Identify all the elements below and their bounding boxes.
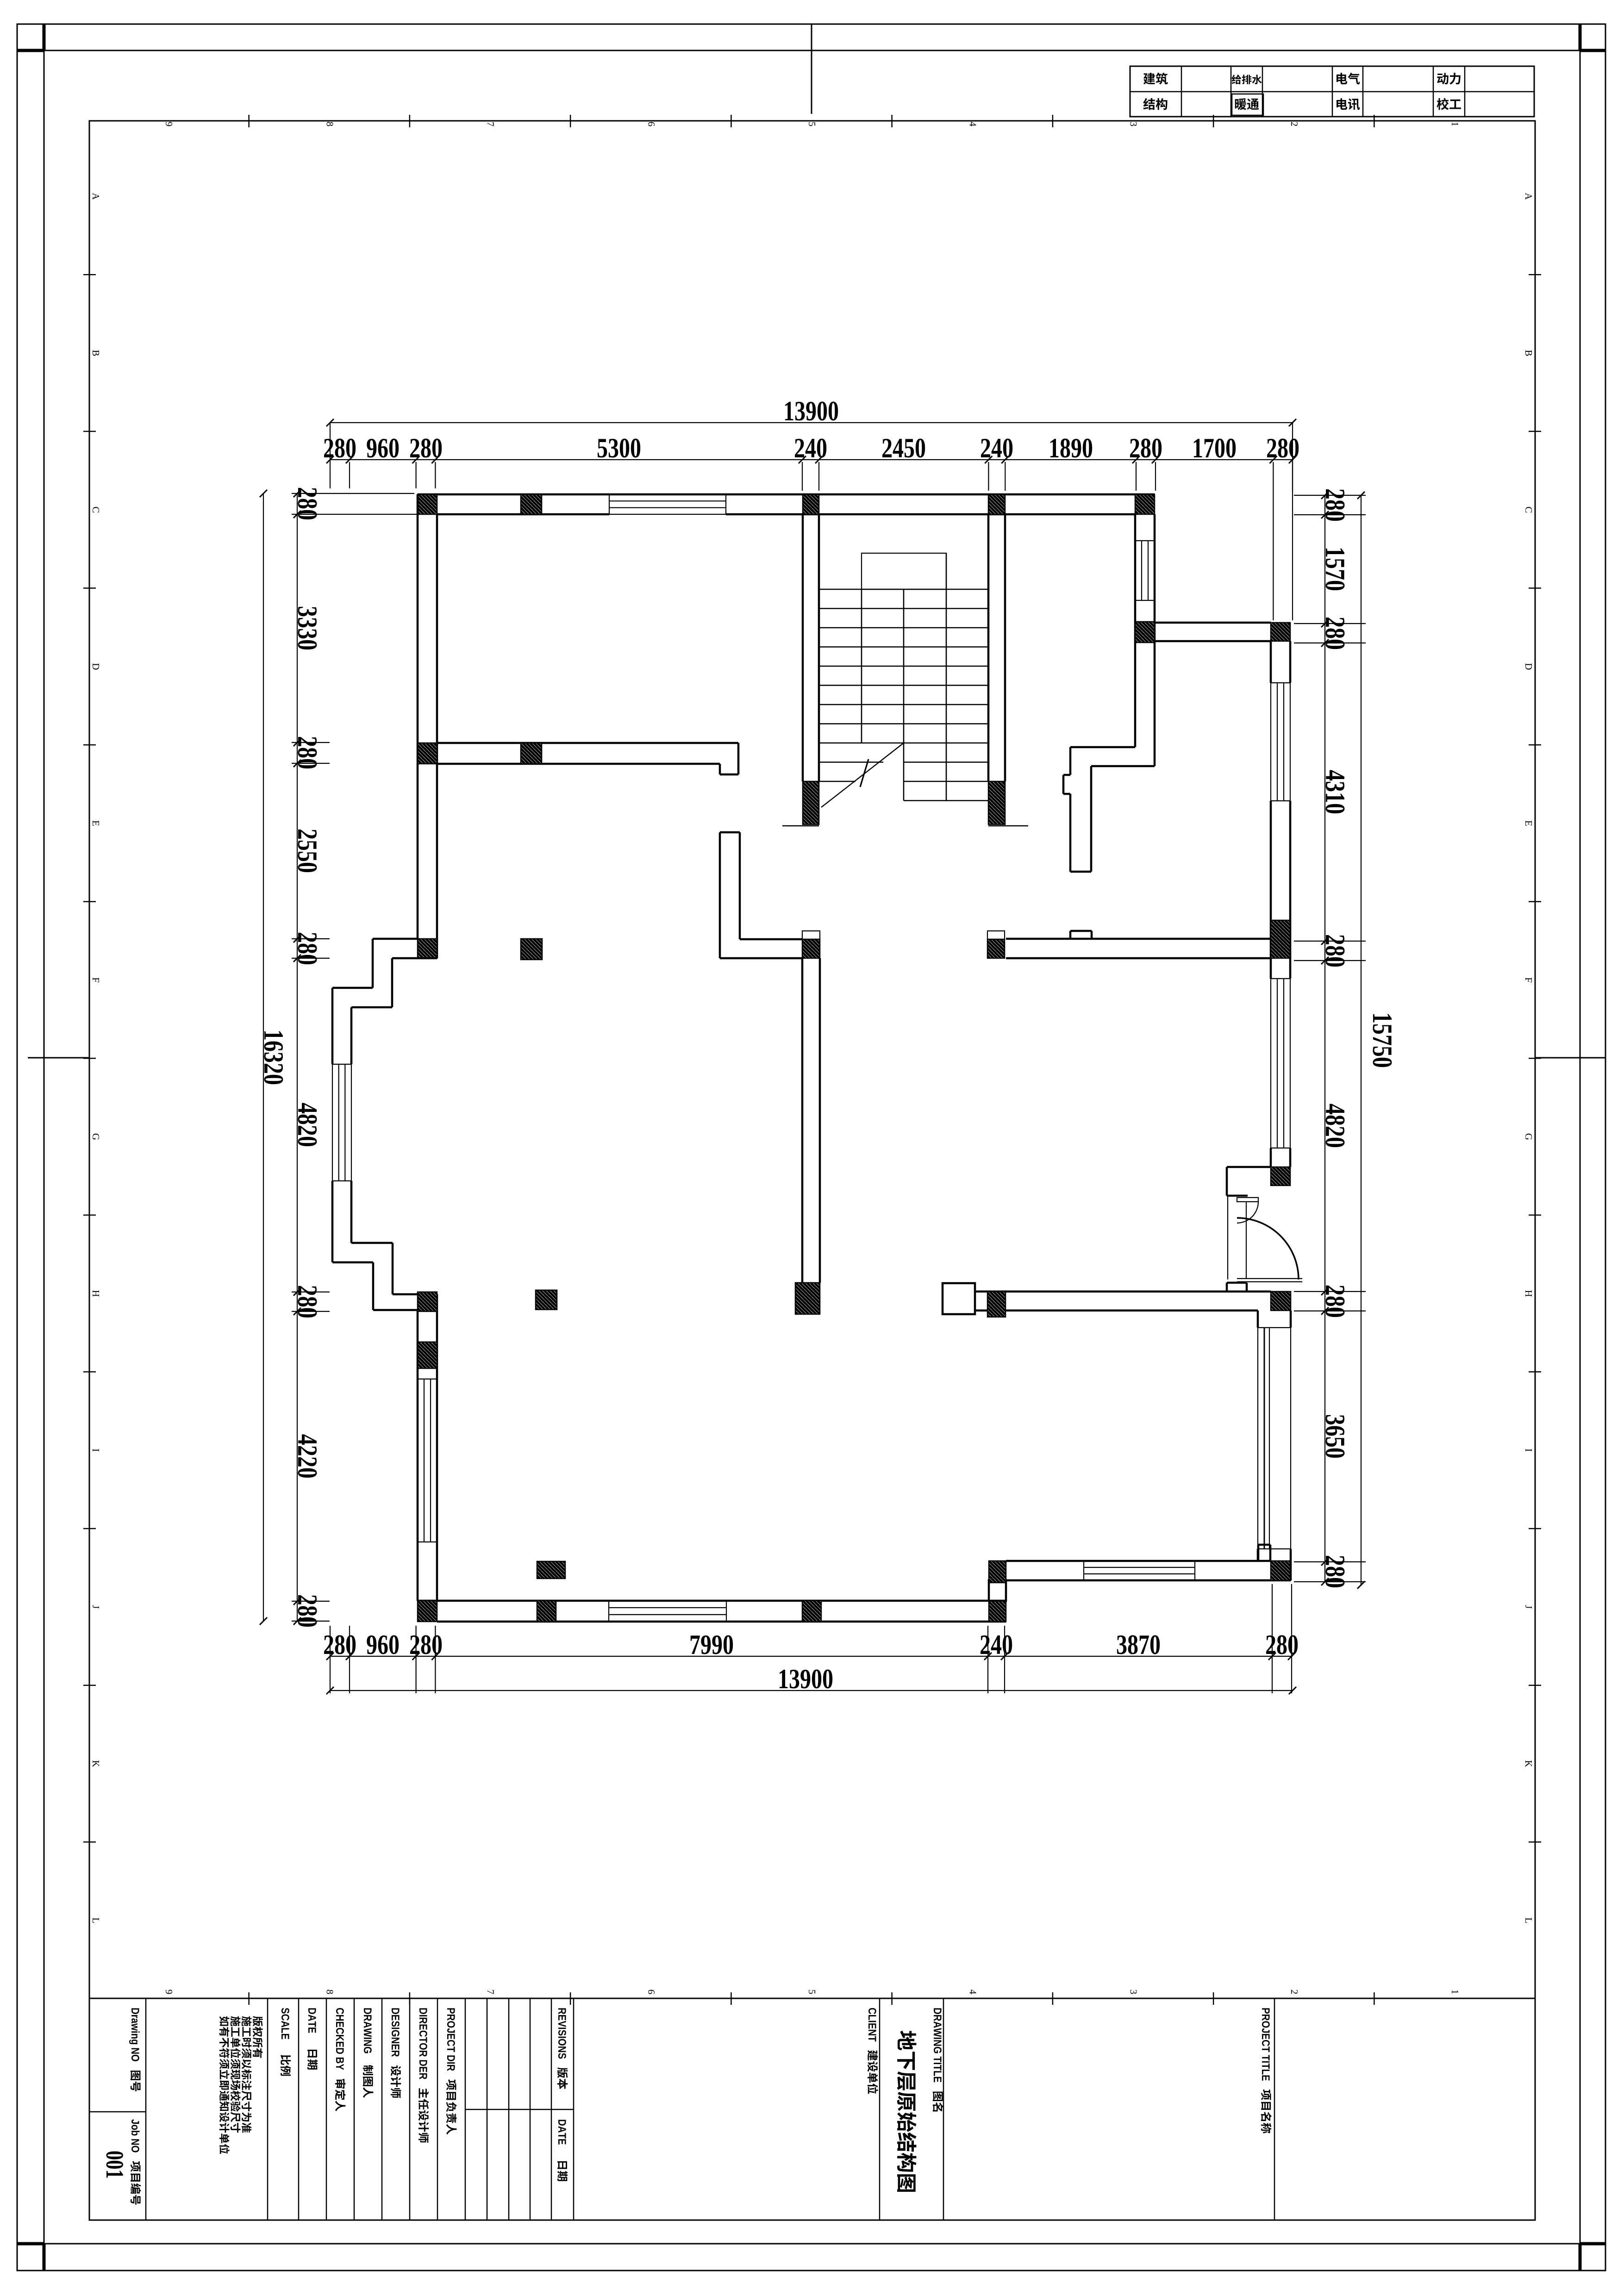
svg-text:PROJECT TITLE: PROJECT TITLE [1260,2008,1272,2081]
svg-text:CLIENT: CLIENT [866,2008,879,2042]
svg-text:4220: 4220 [292,1434,323,1479]
svg-text:280: 280 [1320,1285,1350,1318]
svg-text:8: 8 [324,1990,335,1995]
svg-text:001: 001 [101,2151,129,2179]
svg-text:280: 280 [409,1629,443,1660]
svg-text:280: 280 [1266,433,1299,463]
svg-text:4820: 4820 [292,1103,323,1147]
svg-text:H: H [1523,1290,1534,1297]
svg-text:4820: 4820 [1320,1104,1350,1148]
svg-text:280: 280 [292,1594,323,1628]
svg-text:280: 280 [1320,934,1350,967]
svg-text:DATE: DATE [556,2119,568,2145]
svg-text:280: 280 [292,736,323,769]
svg-text:9: 9 [163,1990,175,1995]
svg-text:F: F [90,977,101,983]
svg-text:280: 280 [1320,617,1350,650]
svg-text:240: 240 [980,1629,1013,1660]
svg-text:Job NO: Job NO [129,2119,142,2153]
svg-text:5300: 5300 [597,433,641,463]
svg-text:4: 4 [967,122,978,127]
svg-text:L: L [90,1917,101,1923]
svg-text:4: 4 [967,1990,978,1995]
svg-text:SCALE: SCALE [279,2008,292,2040]
svg-text:13900: 13900 [783,396,839,426]
svg-text:280: 280 [1129,433,1162,463]
svg-text:7990: 7990 [689,1629,734,1660]
svg-text:B: B [1523,350,1534,356]
svg-text:3: 3 [1128,122,1139,127]
svg-text:K: K [1523,1760,1534,1767]
svg-text:280: 280 [1320,488,1350,522]
svg-text:9: 9 [163,122,175,127]
svg-text:DRAWING: DRAWING [362,2008,374,2054]
svg-text:CHECKED BY: CHECKED BY [334,2008,346,2070]
svg-text:DATE: DATE [306,2008,319,2034]
svg-text:DESIGNER: DESIGNER [389,2008,402,2057]
svg-text:15750: 15750 [1367,1012,1398,1068]
svg-text:13900: 13900 [778,1664,833,1694]
svg-text:C: C [90,506,101,513]
svg-text:E: E [1523,820,1534,826]
svg-text:G: G [1523,1133,1534,1140]
svg-text:280: 280 [292,487,323,520]
svg-text:J: J [90,1605,101,1609]
svg-text:5: 5 [806,1990,818,1995]
svg-text:H: H [90,1290,101,1297]
svg-text:3: 3 [1128,1990,1139,1995]
svg-text:REVISIONS: REVISIONS [556,2008,568,2059]
svg-text:2450: 2450 [881,433,926,463]
svg-text:3870: 3870 [1116,1629,1161,1660]
svg-text:I: I [90,1448,101,1452]
svg-text:D: D [1523,663,1534,670]
svg-text:6: 6 [646,1990,657,1995]
svg-text:4310: 4310 [1320,770,1350,814]
svg-text:280: 280 [323,433,356,463]
svg-text:280: 280 [292,932,323,965]
svg-text:280: 280 [1320,1555,1350,1588]
svg-text:A: A [1523,193,1534,200]
svg-text:280: 280 [292,1285,323,1318]
svg-text:280: 280 [1265,1629,1299,1660]
svg-text:2: 2 [1289,122,1300,127]
svg-text:1570: 1570 [1320,547,1350,591]
svg-text:1: 1 [1449,1990,1461,1995]
svg-text:280: 280 [323,1629,356,1660]
svg-text:G: G [90,1133,101,1140]
svg-text:16320: 16320 [258,1029,289,1085]
svg-text:1700: 1700 [1192,433,1237,463]
svg-text:5: 5 [806,122,818,127]
svg-text:240: 240 [980,433,1013,463]
svg-text:D: D [90,663,101,670]
svg-text:8: 8 [324,122,335,127]
svg-text:C: C [1523,506,1534,513]
svg-text:DRAWING TITLE: DRAWING TITLE [931,2008,944,2083]
svg-text:3330: 3330 [292,606,323,650]
svg-text:I: I [1523,1448,1534,1452]
svg-text:E: E [90,820,101,826]
svg-text:B: B [90,350,101,356]
svg-text:1890: 1890 [1049,433,1093,463]
svg-text:7: 7 [485,122,496,127]
svg-text:PROJECT DIR: PROJECT DIR [445,2008,457,2071]
svg-text:1: 1 [1449,122,1461,127]
svg-text:L: L [1523,1917,1534,1923]
svg-text:960: 960 [366,433,400,463]
svg-text:2550: 2550 [292,829,323,873]
svg-text:Drawing NO: Drawing NO [129,2008,142,2062]
svg-text:F: F [1523,977,1534,983]
svg-text:280: 280 [409,433,443,463]
svg-text:DIRECTOR DER: DIRECTOR DER [417,2008,430,2079]
svg-text:240: 240 [794,433,827,463]
svg-text:3650: 3650 [1320,1414,1350,1459]
svg-text:A: A [90,193,101,200]
svg-text:2: 2 [1289,1990,1300,1995]
svg-text:7: 7 [485,1990,496,1995]
svg-text:6: 6 [646,122,657,127]
svg-text:J: J [1523,1605,1534,1609]
svg-text:960: 960 [366,1629,400,1660]
svg-text:K: K [90,1760,101,1767]
